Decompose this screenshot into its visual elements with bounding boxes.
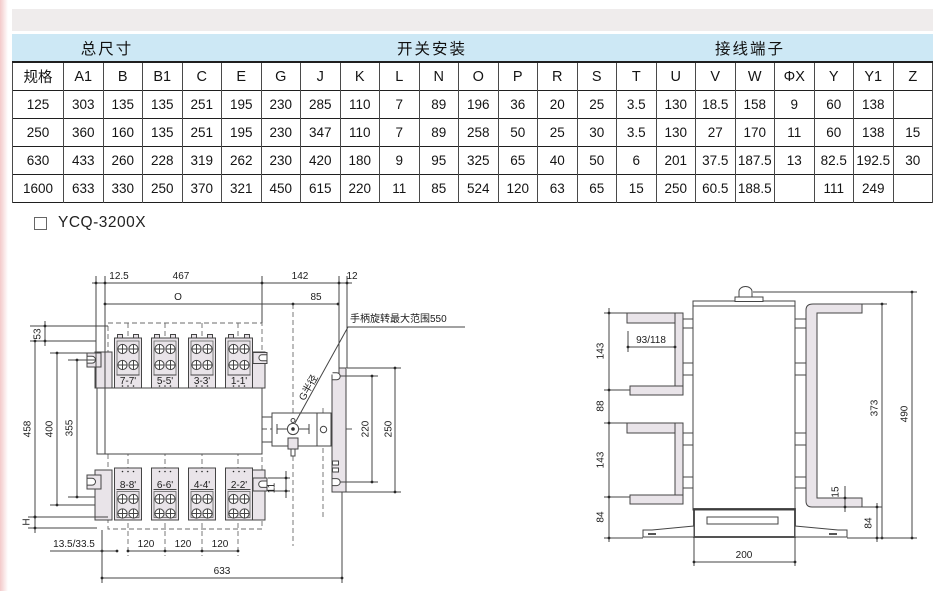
dim-label: 373	[870, 399, 881, 416]
column-header: T	[617, 62, 657, 91]
table-cell: 60	[814, 119, 854, 147]
table-cell: 85	[419, 175, 459, 203]
table-cell: 15	[617, 175, 657, 203]
table-row: 2503601601352511952303471107892585025303…	[13, 119, 933, 147]
table-cell: 3.5	[617, 119, 657, 147]
handle-assembly	[272, 413, 331, 456]
table-cell: 25	[577, 91, 617, 119]
table-cell: 18.5	[696, 91, 736, 119]
table-cell: 450	[261, 175, 301, 203]
column-header: ΦX	[775, 62, 815, 91]
technical-drawings: 7-7' 5-5' 3-3' 1-1' 8-8' 6-6' 4-4' 2-2'	[0, 261, 933, 591]
column-header: Z	[893, 62, 933, 91]
terminal-block	[115, 468, 142, 520]
dim-label: 15	[831, 486, 842, 498]
dim-label: H	[22, 518, 33, 525]
dim-label: 85	[310, 292, 322, 303]
switch-body	[97, 388, 262, 454]
table-cell: 11	[775, 119, 815, 147]
table-cell: 258	[459, 119, 499, 147]
table-cell: 195	[222, 119, 262, 147]
table-cell: 433	[64, 147, 104, 175]
right-plate	[806, 304, 862, 507]
table-cell: 347	[301, 119, 341, 147]
table-cell: 260	[103, 147, 143, 175]
terminal-label: 8-8'	[120, 480, 136, 491]
column-header: L	[380, 62, 420, 91]
column-header: G	[261, 62, 301, 91]
table-cell: 195	[222, 91, 262, 119]
dim-label: 84	[864, 517, 875, 529]
table-cell: 250	[656, 175, 696, 203]
table-row: 1600633330250370321450615220118552412063…	[13, 175, 933, 203]
table-cell: 262	[222, 147, 262, 175]
dim-label: 120	[212, 539, 229, 550]
dim-label: 11	[267, 482, 278, 493]
table-cell: 65	[577, 175, 617, 203]
table-cell: 82.5	[814, 147, 854, 175]
base-block	[694, 509, 795, 537]
catalog-page: { "table": { "group_headers": [ {"label"…	[0, 0, 933, 591]
model-label: YCQ-3200X	[58, 214, 146, 232]
dim-label: O	[174, 292, 182, 303]
table-cell: 95	[419, 147, 459, 175]
table-row: 1253031351352511952302851107891963620253…	[13, 91, 933, 119]
foot-right	[795, 526, 847, 537]
table-cell: 303	[64, 91, 104, 119]
group-header-overall: 总尺寸	[81, 37, 134, 59]
column-header: P	[498, 62, 538, 91]
table-cell: 201	[656, 147, 696, 175]
table-cell: 187.5	[735, 147, 775, 175]
top-strip	[12, 9, 933, 31]
table-cell: 7	[380, 91, 420, 119]
table-cell: 1600	[13, 175, 64, 203]
dim-label: 458	[23, 420, 34, 437]
table-cell: 11	[380, 175, 420, 203]
dim-label: 143	[596, 451, 607, 468]
dim-label: 12	[346, 271, 358, 282]
dim-label: 13.5/33.5	[53, 539, 95, 550]
dim-label: 88	[596, 400, 607, 412]
column-header: E	[222, 62, 262, 91]
handle-note: 手柄旋转最大范围550	[350, 312, 447, 325]
table-cell: 89	[419, 119, 459, 147]
group-header-terminals: 接线端子	[715, 37, 785, 59]
table-cell: 6	[617, 147, 657, 175]
table-cell: 251	[182, 119, 222, 147]
table-cell: 319	[182, 147, 222, 175]
table-cell: 250	[13, 119, 64, 147]
column-header: K	[340, 62, 380, 91]
column-header: Y1	[854, 62, 894, 91]
table-cell: 192.5	[854, 147, 894, 175]
table-cell: 63	[538, 175, 578, 203]
column-header: B	[103, 62, 143, 91]
table-cell: 15	[893, 119, 933, 147]
column-header: 规格	[13, 62, 64, 91]
table-cell: 36	[498, 91, 538, 119]
column-header: A1	[64, 62, 104, 91]
table-cell	[893, 175, 933, 203]
table-cell: 158	[735, 91, 775, 119]
table-cell: 321	[222, 175, 262, 203]
column-header: S	[577, 62, 617, 91]
dim-label: 93/118	[636, 335, 666, 346]
table-cell: 20	[538, 91, 578, 119]
table-cell: 60.5	[696, 175, 736, 203]
table-cell: 188.5	[735, 175, 775, 203]
table-cell: 330	[103, 175, 143, 203]
table-cell: 89	[419, 91, 459, 119]
table-cell: 630	[13, 147, 64, 175]
table-cell: 615	[301, 175, 341, 203]
terminal-block	[189, 468, 216, 520]
terminal-label: 2-2'	[231, 480, 247, 491]
dim-label: 120	[175, 539, 192, 550]
column-header: O	[459, 62, 499, 91]
spec-table: 规格A1BB1CEGJKLNOPRSTUVWΦXYY1Z125303135135…	[12, 61, 933, 203]
column-header: V	[696, 62, 736, 91]
left-drawing: 7-7' 5-5' 3-3' 1-1' 8-8' 6-6' 4-4' 2-2'	[22, 271, 466, 583]
table-cell: 9	[380, 147, 420, 175]
table-cell	[893, 91, 933, 119]
top-knob	[739, 287, 752, 298]
terminal-label: 6-6'	[157, 480, 173, 491]
table-cell: 27	[696, 119, 736, 147]
foot-left	[643, 526, 694, 537]
table-cell: 130	[656, 119, 696, 147]
table-cell: 30	[577, 119, 617, 147]
table-cell: 524	[459, 175, 499, 203]
table-cell: 13	[775, 147, 815, 175]
table-cell: 120	[498, 175, 538, 203]
column-header: C	[182, 62, 222, 91]
table-cell: 40	[538, 147, 578, 175]
table-cell: 170	[735, 119, 775, 147]
dim-label: 490	[900, 405, 911, 422]
column-header: N	[419, 62, 459, 91]
table-cell: 30	[893, 147, 933, 175]
dim-label: 143	[596, 342, 607, 359]
table-cell: 111	[814, 175, 854, 203]
table-group-header-band: 总尺寸 开关安装 接线端子	[12, 34, 933, 61]
column-header: B1	[143, 62, 183, 91]
dim-label: 467	[173, 271, 190, 282]
handle-note-leader	[295, 327, 465, 423]
right-drawing: 143 88 143 84 93/118 373 490 15 84 200	[596, 287, 918, 567]
dim-label: 12.5	[109, 271, 129, 282]
left-bracket-bottom	[627, 423, 693, 504]
dim-label: 142	[292, 271, 309, 282]
dim-label: 84	[596, 511, 607, 523]
table-cell: 9	[775, 91, 815, 119]
switch-side-body	[693, 301, 795, 510]
column-header: R	[538, 62, 578, 91]
table-cell: 180	[340, 147, 380, 175]
table-cell: 130	[656, 91, 696, 119]
table-cell	[775, 175, 815, 203]
table-cell: 220	[340, 175, 380, 203]
table-cell: 110	[340, 119, 380, 147]
table-cell: 25	[538, 119, 578, 147]
table-cell: 135	[103, 91, 143, 119]
table-cell: 420	[301, 147, 341, 175]
table-cell: 230	[261, 147, 301, 175]
table-cell: 110	[340, 91, 380, 119]
dim-label: 220	[361, 420, 372, 437]
column-header: Y	[814, 62, 854, 91]
table-cell: 228	[143, 147, 183, 175]
terminal-block	[226, 468, 253, 520]
table-cell: 50	[577, 147, 617, 175]
terminal-label: 3-3'	[194, 376, 210, 387]
column-header: W	[735, 62, 775, 91]
table-cell: 160	[103, 119, 143, 147]
table-cell: 50	[498, 119, 538, 147]
table-cell: 196	[459, 91, 499, 119]
terminal-label: 4-4'	[194, 480, 210, 491]
table-cell: 230	[261, 119, 301, 147]
dim-label: 200	[736, 550, 753, 561]
terminal-label: 5-5'	[157, 376, 173, 387]
table-row: 6304332602283192622304201809953256540506…	[13, 147, 933, 175]
dim-label: 120	[138, 539, 155, 550]
terminal-block	[152, 468, 179, 520]
dim-label: 633	[214, 566, 231, 577]
table-cell: 37.5	[696, 147, 736, 175]
dim-label: 400	[45, 420, 56, 437]
terminal-label: 7-7'	[120, 376, 136, 387]
table-cell: 360	[64, 119, 104, 147]
dim-label: 53	[33, 328, 44, 340]
model-row: YCQ-3200X	[34, 214, 146, 232]
table-cell: 251	[182, 91, 222, 119]
table-cell: 138	[854, 91, 894, 119]
table-cell: 135	[143, 119, 183, 147]
g-radius-note: G半径	[296, 372, 321, 403]
table-cell: 3.5	[617, 91, 657, 119]
table-cell: 230	[261, 91, 301, 119]
table-cell: 285	[301, 91, 341, 119]
dim-label: 250	[384, 420, 395, 437]
handle-flange	[332, 368, 346, 492]
terminal-label: 1-1'	[231, 376, 247, 387]
table-cell: 370	[182, 175, 222, 203]
table-cell: 325	[459, 147, 499, 175]
column-header: J	[301, 62, 341, 91]
table-cell: 60	[814, 91, 854, 119]
group-header-mounting: 开关安装	[397, 37, 467, 59]
dim-label: 355	[65, 419, 76, 436]
column-header: U	[656, 62, 696, 91]
table-cell: 135	[143, 91, 183, 119]
table-cell: 138	[854, 119, 894, 147]
table-cell: 633	[64, 175, 104, 203]
table-cell: 249	[854, 175, 894, 203]
table-cell: 250	[143, 175, 183, 203]
left-bracket-top	[627, 313, 693, 395]
table-cell: 125	[13, 91, 64, 119]
table-cell: 65	[498, 147, 538, 175]
table-cell: 7	[380, 119, 420, 147]
square-bullet-icon	[34, 217, 47, 230]
